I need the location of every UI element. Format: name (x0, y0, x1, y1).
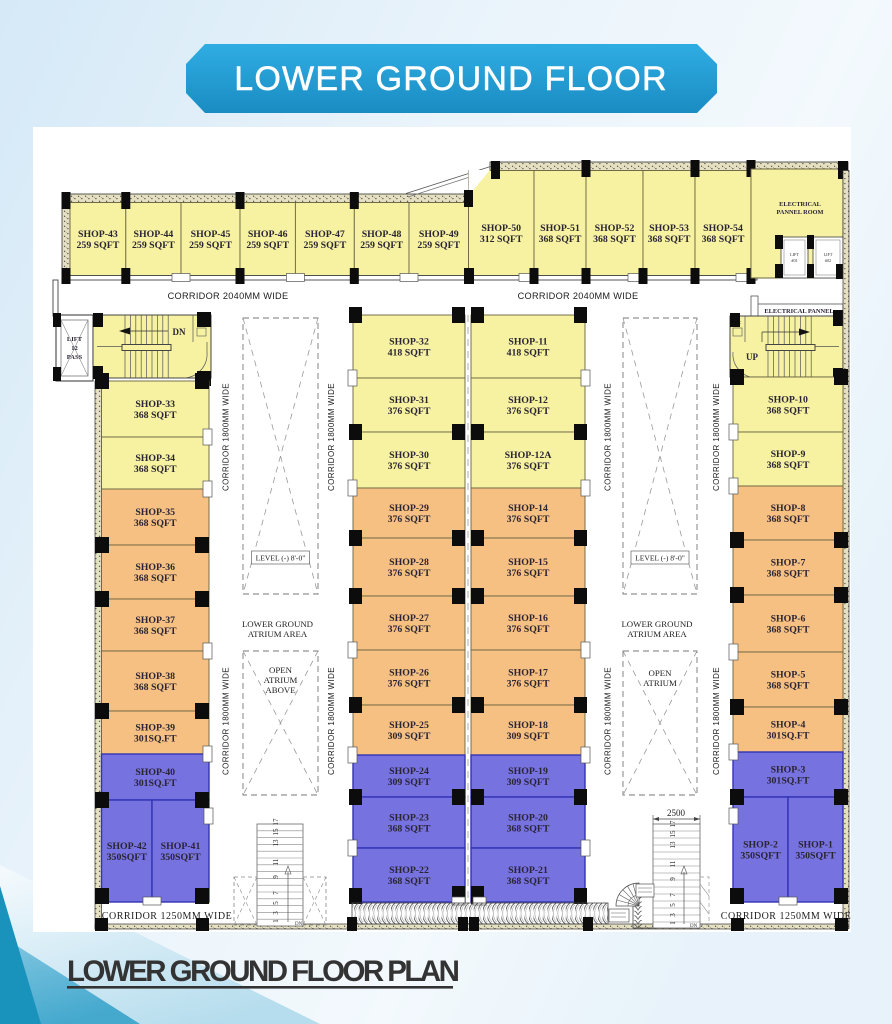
svg-text:11: 11 (272, 858, 280, 865)
svg-text:SHOP-19: SHOP-19 (508, 766, 548, 777)
svg-text:368 SQFT: 368 SQFT (767, 569, 810, 580)
svg-text:ATRIUM AREA: ATRIUM AREA (627, 629, 687, 639)
svg-text:UP: UP (746, 352, 758, 362)
svg-text:376 SQFT: 376 SQFT (507, 461, 550, 472)
svg-text:SHOP-1: SHOP-1 (798, 839, 833, 850)
svg-text:1: 1 (272, 919, 280, 923)
svg-text:LIFT: LIFT (790, 252, 799, 257)
svg-text:SHOP-54: SHOP-54 (703, 223, 743, 234)
svg-text:SHOP-30: SHOP-30 (389, 450, 429, 461)
svg-text:368 SQFT: 368 SQFT (767, 460, 810, 471)
svg-text:368 SQFT: 368 SQFT (702, 234, 745, 245)
svg-text:9: 9 (669, 877, 677, 881)
svg-text:SHOP-16: SHOP-16 (508, 613, 548, 624)
svg-text:259 SQFT: 259 SQFT (417, 240, 460, 251)
svg-text:SHOP-27: SHOP-27 (389, 613, 429, 624)
svg-text:376 SQFT: 376 SQFT (507, 514, 550, 525)
svg-text:376 SQFT: 376 SQFT (388, 624, 431, 635)
svg-text:SHOP-44: SHOP-44 (134, 229, 174, 240)
svg-text:SHOP-25: SHOP-25 (389, 720, 429, 731)
svg-text:SHOP-38: SHOP-38 (135, 671, 175, 682)
svg-text:LOWER GROUND: LOWER GROUND (242, 619, 313, 629)
svg-text:15: 15 (669, 830, 677, 838)
svg-text:SHOP-2: SHOP-2 (743, 839, 778, 850)
svg-text:309 SQFT: 309 SQFT (507, 777, 550, 788)
svg-text:301SQ.FT: 301SQ.FT (134, 734, 177, 745)
svg-text:LEVEL (-) 8'-0": LEVEL (-) 8'-0" (256, 554, 306, 563)
svg-text:259 SQFT: 259 SQFT (246, 240, 289, 251)
svg-text:9: 9 (272, 875, 280, 879)
svg-text:CORRIDOR 1250MM WIDE: CORRIDOR 1250MM WIDE (102, 911, 232, 922)
svg-text:LOWER GROUND FLOOR PLAN: LOWER GROUND FLOOR PLAN (67, 955, 459, 988)
svg-text:301SQ.FT: 301SQ.FT (134, 778, 177, 789)
svg-text:DN: DN (173, 327, 186, 337)
svg-text:259 SQFT: 259 SQFT (304, 240, 347, 251)
svg-text:259 SQFT: 259 SQFT (360, 240, 403, 251)
svg-text:3: 3 (272, 911, 280, 915)
svg-text:SHOP-39: SHOP-39 (135, 722, 175, 733)
svg-text:368 SQFT: 368 SQFT (767, 625, 810, 636)
svg-text:3: 3 (669, 913, 677, 917)
svg-text:ATRIUM: ATRIUM (264, 675, 298, 685)
svg-text:368 SQFT: 368 SQFT (767, 681, 810, 692)
svg-text:376 SQFT: 376 SQFT (507, 406, 550, 417)
svg-text:SHOP-10: SHOP-10 (768, 394, 808, 405)
svg-text:#01: #01 (791, 258, 797, 263)
svg-text:SHOP-40: SHOP-40 (135, 767, 175, 778)
svg-text:418 SQFT: 418 SQFT (507, 348, 550, 359)
svg-text:13: 13 (272, 839, 280, 847)
svg-text:350SQFT: 350SQFT (740, 851, 781, 862)
svg-text:ELECTRICAL: ELECTRICAL (779, 201, 821, 208)
svg-text:CORRIDOR 1800MM WIDE: CORRIDOR 1800MM WIDE (604, 667, 613, 775)
svg-text:SHOP-50: SHOP-50 (481, 223, 521, 234)
svg-text:SHOP-45: SHOP-45 (191, 229, 231, 240)
svg-text:SHOP-4: SHOP-4 (771, 719, 806, 730)
svg-text:SHOP-12: SHOP-12 (508, 395, 548, 406)
svg-text:259 SQFT: 259 SQFT (189, 240, 232, 251)
svg-text:309 SQFT: 309 SQFT (388, 731, 431, 742)
svg-text:SHOP-7: SHOP-7 (771, 557, 806, 568)
svg-text:SHOP-51: SHOP-51 (540, 223, 580, 234)
svg-text:LOWER GROUND FLOOR: LOWER GROUND FLOOR (234, 60, 667, 98)
svg-text:LIFT: LIFT (824, 252, 833, 257)
svg-text:418 SQFT: 418 SQFT (388, 348, 431, 359)
svg-text:SHOP-47: SHOP-47 (305, 229, 345, 240)
svg-text:SHOP-36: SHOP-36 (135, 562, 175, 573)
svg-text:13: 13 (669, 841, 677, 849)
svg-text:DN: DN (295, 922, 303, 927)
svg-text:SHOP-12A: SHOP-12A (505, 450, 552, 461)
svg-text:376 SQFT: 376 SQFT (388, 568, 431, 579)
svg-text:SHOP-33: SHOP-33 (135, 399, 175, 410)
svg-text:SHOP-41: SHOP-41 (161, 841, 201, 852)
svg-text:SHOP-5: SHOP-5 (771, 669, 806, 680)
svg-text:#02: #02 (825, 258, 831, 263)
svg-text:368 SQFT: 368 SQFT (767, 406, 810, 417)
svg-text:SHOP-37: SHOP-37 (135, 615, 175, 626)
svg-text:SHOP-11: SHOP-11 (508, 336, 547, 347)
svg-text:LIFT: LIFT (67, 336, 83, 343)
svg-text:SHOP-20: SHOP-20 (508, 812, 548, 823)
svg-text:368 SQFT: 368 SQFT (388, 876, 431, 887)
svg-text:ATRIUM AREA: ATRIUM AREA (248, 629, 308, 639)
svg-text:301SQ.FT: 301SQ.FT (767, 776, 810, 787)
svg-text:368 SQFT: 368 SQFT (134, 464, 177, 475)
svg-text:SHOP-8: SHOP-8 (771, 503, 806, 514)
svg-text:SHOP-34: SHOP-34 (135, 453, 175, 464)
svg-text:SHOP-49: SHOP-49 (419, 229, 459, 240)
svg-text:SHOP-48: SHOP-48 (362, 229, 402, 240)
svg-text:CORRIDOR 1800MM WIDE: CORRIDOR 1800MM WIDE (327, 383, 336, 491)
svg-text:DN: DN (690, 924, 698, 929)
svg-text:5: 5 (669, 903, 677, 907)
svg-text:301SQ.FT: 301SQ.FT (767, 731, 810, 742)
svg-text:17: 17 (272, 818, 280, 826)
svg-text:376 SQFT: 376 SQFT (388, 406, 431, 417)
svg-text:12: 12 (71, 345, 78, 352)
svg-text:SHOP-23: SHOP-23 (389, 812, 429, 823)
svg-text:ATRIUM: ATRIUM (643, 678, 677, 688)
svg-text:309 SQFT: 309 SQFT (388, 777, 431, 788)
svg-text:SHOP-26: SHOP-26 (389, 667, 429, 678)
svg-text:CORRIDOR 2040MM WIDE: CORRIDOR 2040MM WIDE (518, 291, 639, 301)
svg-text:2500: 2500 (667, 808, 686, 818)
svg-text:7: 7 (669, 893, 677, 897)
svg-text:SHOP-52: SHOP-52 (595, 223, 635, 234)
svg-text:259 SQFT: 259 SQFT (132, 240, 175, 251)
svg-text:376 SQFT: 376 SQFT (388, 514, 431, 525)
svg-text:SHOP-53: SHOP-53 (649, 223, 689, 234)
svg-text:368 SQFT: 368 SQFT (539, 234, 582, 245)
svg-text:15: 15 (272, 828, 280, 836)
svg-text:ABOVE: ABOVE (265, 685, 295, 695)
svg-text:LEVEL (-) 8'-0": LEVEL (-) 8'-0" (635, 554, 685, 563)
svg-text:SHOP-42: SHOP-42 (107, 841, 147, 852)
svg-text:SHOP-14: SHOP-14 (508, 503, 548, 514)
svg-text:368 SQFT: 368 SQFT (134, 682, 177, 693)
svg-text:312 SQFT: 312 SQFT (480, 234, 523, 245)
svg-text:SHOP-31: SHOP-31 (389, 395, 429, 406)
svg-text:SHOP-46: SHOP-46 (248, 229, 288, 240)
svg-text:SHOP-9: SHOP-9 (771, 449, 806, 460)
svg-text:350SQFT: 350SQFT (160, 852, 201, 863)
svg-text:376 SQFT: 376 SQFT (388, 679, 431, 690)
svg-text:SHOP-21: SHOP-21 (508, 865, 548, 876)
svg-text:OPEN: OPEN (649, 668, 673, 678)
svg-text:SHOP-3: SHOP-3 (771, 764, 806, 775)
svg-text:SHOP-35: SHOP-35 (135, 507, 175, 518)
svg-text:7: 7 (272, 891, 280, 895)
svg-text:CORRIDOR 2040MM WIDE: CORRIDOR 2040MM WIDE (168, 291, 289, 301)
svg-text:5: 5 (272, 901, 280, 905)
svg-text:LOWER GROUND: LOWER GROUND (621, 619, 692, 629)
svg-text:SHOP-24: SHOP-24 (389, 766, 429, 777)
svg-text:SHOP-43: SHOP-43 (78, 229, 118, 240)
svg-text:376 SQFT: 376 SQFT (507, 568, 550, 579)
svg-text:CORRIDOR 1800MM WIDE: CORRIDOR 1800MM WIDE (712, 383, 721, 491)
svg-text:259 SQFT: 259 SQFT (77, 240, 120, 251)
svg-text:CORRIDOR 1800MM WIDE: CORRIDOR 1800MM WIDE (222, 667, 231, 775)
svg-text:368 SQFT: 368 SQFT (767, 514, 810, 525)
svg-text:309 SQFT: 309 SQFT (507, 731, 550, 742)
svg-text:376 SQFT: 376 SQFT (507, 679, 550, 690)
svg-text:350SQFT: 350SQFT (107, 852, 148, 863)
svg-text:368 SQFT: 368 SQFT (134, 626, 177, 637)
svg-text:SHOP-18: SHOP-18 (508, 720, 548, 731)
svg-text:SHOP-29: SHOP-29 (389, 503, 429, 514)
svg-text:OPEN: OPEN (269, 665, 293, 675)
svg-text:SHOP-6: SHOP-6 (771, 613, 806, 624)
svg-text:CORRIDOR 1800MM WIDE: CORRIDOR 1800MM WIDE (327, 667, 336, 775)
svg-text:368 SQFT: 368 SQFT (593, 234, 636, 245)
svg-text:368 SQFT: 368 SQFT (507, 824, 550, 835)
svg-text:CORRIDOR 1800MM WIDE: CORRIDOR 1800MM WIDE (222, 383, 231, 491)
svg-text:1: 1 (669, 921, 677, 925)
svg-text:368 SQFT: 368 SQFT (388, 824, 431, 835)
svg-text:SHOP-17: SHOP-17 (508, 667, 548, 678)
svg-text:SHOP-32: SHOP-32 (389, 336, 429, 347)
svg-text:SHOP-22: SHOP-22 (389, 865, 429, 876)
svg-text:376 SQFT: 376 SQFT (388, 461, 431, 472)
svg-text:PANNEL ROOM: PANNEL ROOM (777, 209, 824, 216)
svg-text:CORRIDOR 1800MM WIDE: CORRIDOR 1800MM WIDE (712, 667, 721, 775)
svg-text:368 SQFT: 368 SQFT (134, 410, 177, 421)
svg-text:17: 17 (669, 820, 677, 828)
svg-text:SHOP-15: SHOP-15 (508, 557, 548, 568)
svg-text:376 SQFT: 376 SQFT (507, 624, 550, 635)
svg-text:CORRIDOR 1800MM WIDE: CORRIDOR 1800MM WIDE (604, 383, 613, 491)
svg-text:PASS: PASS (67, 354, 83, 361)
svg-text:ELECTRICAL PANNEL: ELECTRICAL PANNEL (764, 308, 833, 315)
svg-text:368 SQFT: 368 SQFT (134, 573, 177, 584)
svg-text:368 SQFT: 368 SQFT (134, 518, 177, 529)
svg-text:368 SQFT: 368 SQFT (507, 876, 550, 887)
svg-text:350SQFT: 350SQFT (795, 851, 836, 862)
svg-text:368 SQFT: 368 SQFT (648, 234, 691, 245)
svg-text:11: 11 (669, 860, 677, 867)
svg-text:SHOP-28: SHOP-28 (389, 557, 429, 568)
